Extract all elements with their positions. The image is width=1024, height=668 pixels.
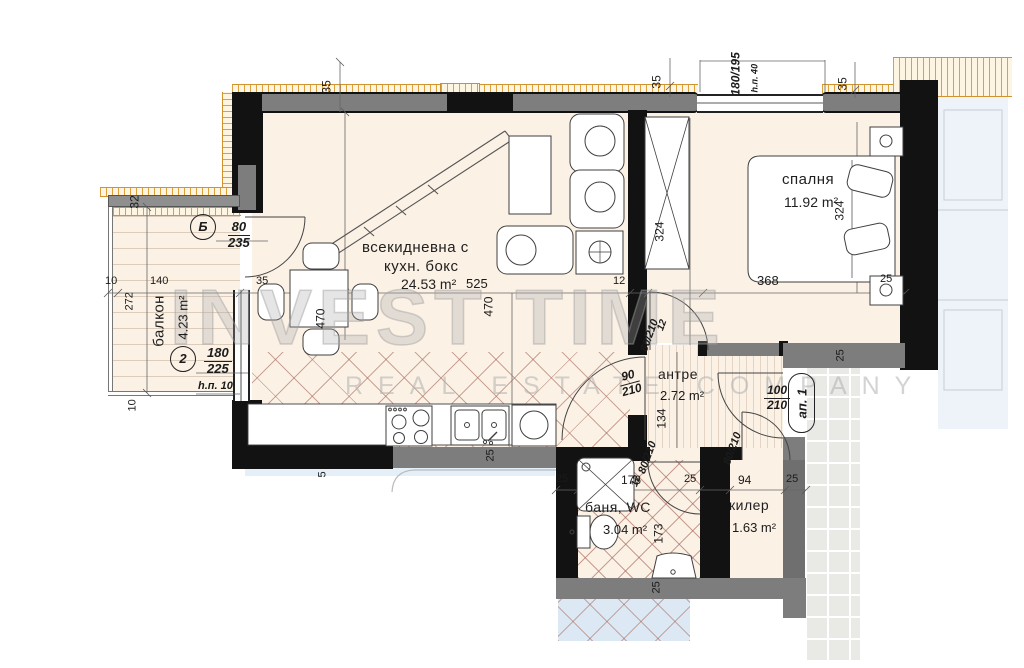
balcony-area: 4.23 m²	[176, 296, 190, 340]
closet-floor	[730, 448, 783, 578]
balcony-door-spec: 80 235	[228, 220, 250, 251]
wall-kitchen-south-black	[232, 445, 393, 469]
dim-top-wall-a: 35	[320, 80, 333, 93]
wall-bathroom-south	[556, 578, 806, 599]
dim-balcony-wall: 32	[128, 195, 141, 208]
bathroom-area: 3.04 m²	[603, 523, 647, 537]
bedroom-window-spec: 180/195	[729, 52, 742, 95]
dim-balcony-width: 140	[150, 276, 168, 288]
dim-balcony-depth: 272	[124, 292, 136, 310]
wall-living-hall-lower	[628, 415, 647, 447]
wall-west-core	[238, 165, 256, 210]
dim-partition: 12	[613, 276, 625, 288]
wall-bathroom-north	[578, 447, 650, 461]
dim-bedroom-width: 368	[757, 274, 779, 288]
wall-bathroom-closet-divider	[700, 447, 730, 599]
dim-living-width: 525	[466, 277, 488, 291]
balcony-window-spec: 180 225	[204, 346, 232, 377]
dim-hall-height: 134	[655, 409, 668, 429]
dim-top-wall-b: 35	[650, 75, 663, 88]
dim-kitchen-wall: 5	[317, 471, 329, 477]
balcony-window-sill: h.п. 10	[198, 381, 233, 393]
wall-bathroom-west	[556, 447, 578, 599]
balcony-door-marker: Б	[190, 214, 216, 240]
dim-living-depth-b: 470	[482, 297, 495, 317]
bedroom-label: спалня	[782, 172, 834, 188]
wall-west-lower-column	[232, 400, 262, 447]
dim-balcony-offset: 10	[105, 276, 117, 288]
balcony-label: балкон	[151, 295, 167, 347]
hallway-area: 2.72 m²	[660, 389, 704, 403]
closet-label: килер	[729, 498, 769, 513]
dim-wardrobe-length: 324	[653, 222, 666, 242]
bathroom-label: баня, WC	[585, 500, 651, 515]
dim-bath-width: 176	[621, 474, 641, 487]
closet-area: 1.63 m²	[732, 521, 776, 535]
dim-balcony-bottom: 10	[127, 399, 139, 411]
shaft-below-bathroom	[558, 599, 690, 641]
living-room-label-2: кухн. бокс	[384, 259, 459, 275]
dim-entry-wall: 25	[835, 349, 847, 361]
dim-bath-depth: 173	[652, 524, 665, 544]
neighbor-unit-area	[938, 95, 1008, 429]
dim-bath-wall-a: 25	[556, 474, 568, 486]
dim-kitchen-wall-b: 25	[485, 449, 497, 461]
bedroom-area: 11.92 m²	[784, 195, 838, 210]
dim-bedroom-wall: 25	[880, 274, 892, 286]
dim-living-wall-west: 35	[256, 276, 268, 288]
bedroom-window	[697, 94, 823, 113]
dim-bath-wall-d: 25	[651, 581, 663, 593]
living-room-area: 24.53 m²	[401, 277, 456, 292]
living-room-label-1: всекидневна с	[362, 240, 469, 256]
wall-north-band-east	[822, 92, 904, 113]
floor-plan: INVEST TIME REAL ESTATE COMPANY	[0, 0, 1024, 668]
dim-bath-wall-b: 25	[684, 474, 696, 486]
hallway-label: антре	[658, 367, 698, 382]
wall-east-column	[900, 80, 938, 370]
balcony-rail-west	[108, 207, 113, 395]
wall-north-column	[447, 92, 513, 113]
dim-top-wall-c: 35	[836, 77, 849, 90]
dim-bed-length: 324	[833, 201, 846, 221]
entrance-door-marker: ап. 1	[788, 373, 815, 433]
entrance-door-spec: 100 210	[764, 384, 790, 413]
lower-terrace-strip	[245, 468, 555, 476]
dim-bath-wall-c: 25	[786, 474, 798, 486]
dim-closet-width: 94	[738, 474, 751, 487]
bedroom-window-sill: h.п. 40	[751, 64, 760, 93]
wall-kitchen-south-gray	[393, 447, 558, 468]
wall-entrance-south	[783, 437, 805, 461]
dim-living-depth-a: 470	[314, 309, 327, 329]
balcony-window-marker: 2	[170, 346, 196, 372]
